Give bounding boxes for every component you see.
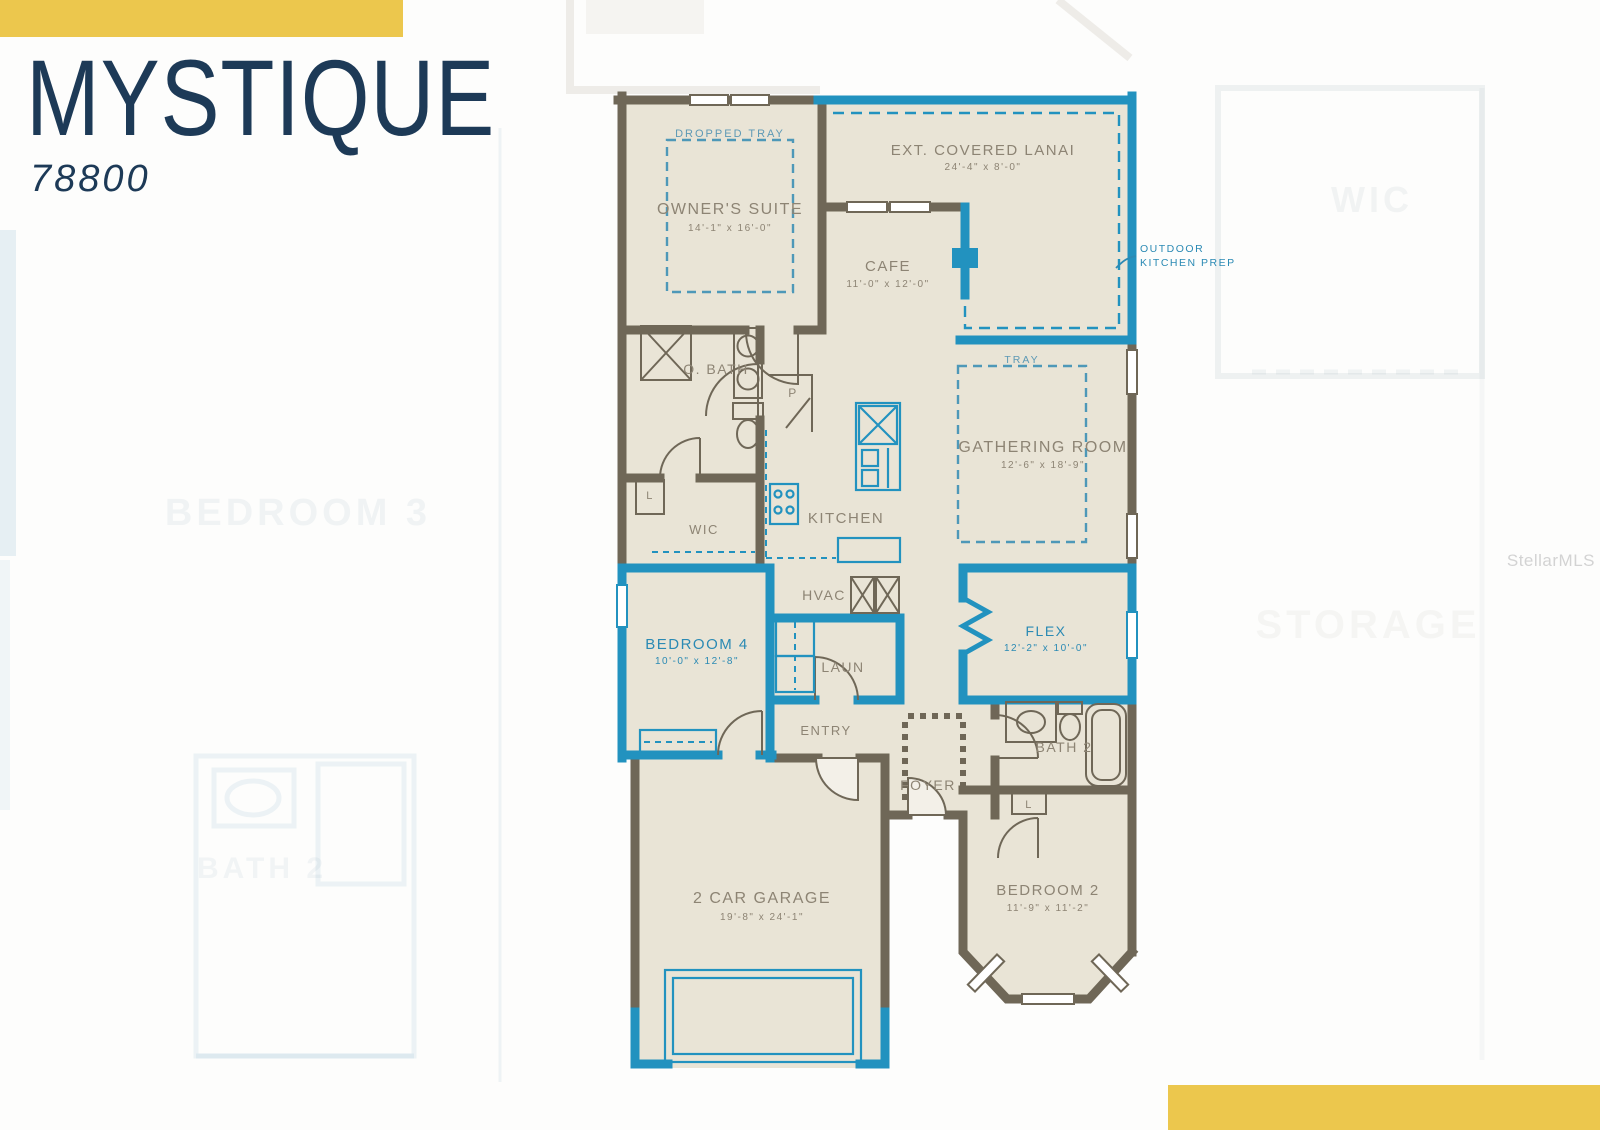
window — [890, 202, 930, 212]
floor-plan-drawing: BEDROOM 3 BATH 2 STORAGE WIC — [0, 0, 1600, 1130]
gathering-label: GATHERING ROOM — [958, 439, 1127, 456]
owners-suite-label: OWNER'S SUITE — [657, 201, 803, 218]
bg-label-storage: STORAGE — [1255, 603, 1480, 647]
pantry-label: P — [788, 386, 798, 400]
bay-window — [1022, 994, 1074, 1004]
bottom-accent-bar — [1168, 1085, 1600, 1130]
obath-label: O. BATH — [683, 361, 748, 377]
hvac-label: HVAC — [802, 587, 846, 603]
dropped-tray-label: DROPPED TRAY — [675, 128, 785, 140]
laundry-label: LAUN — [821, 659, 864, 675]
bg-bath-fixtures — [196, 756, 414, 1056]
window — [731, 95, 769, 105]
entry-label: ENTRY — [800, 723, 851, 738]
cafe-dims: 11'-0" x 12'-0" — [846, 279, 929, 290]
bedroom2-label: BEDROOM 2 — [996, 882, 1100, 899]
window — [847, 202, 887, 212]
window — [1127, 514, 1137, 558]
wic-label: WIC — [689, 522, 719, 537]
kitchen-label: KITCHEN — [808, 510, 884, 527]
cafe-label: CAFE — [865, 258, 911, 275]
window — [690, 95, 728, 105]
bg-label-bedroom3: BEDROOM 3 — [165, 492, 431, 534]
gathering-dims: 12'-6" x 18'-9" — [1001, 460, 1085, 471]
lanai-dims: 24'-4" x 8'-0" — [945, 162, 1022, 173]
owner-linen-label: L — [646, 490, 654, 502]
garage-label: 2 CAR GARAGE — [693, 890, 831, 907]
window — [1127, 612, 1137, 658]
stellar-mls-watermark: StellarMLS — [1507, 551, 1595, 571]
bath2-label: BATH 2 — [1036, 739, 1093, 755]
bg-label-bath2: BATH 2 — [197, 852, 327, 885]
foyer-label: FOYER — [900, 777, 956, 793]
window — [1127, 350, 1137, 394]
lanai-label: EXT. COVERED LANAI — [891, 142, 1076, 159]
outdoor-prep-label-2: KITCHEN PREP — [1140, 257, 1236, 269]
floorplan-page: { "header": { "title": "MYSTIQUE", "mode… — [0, 0, 1600, 1130]
outdoor-prep-label-1: OUTDOOR — [1140, 243, 1204, 255]
garage-dims: 19'-8" x 24'-1" — [720, 912, 804, 923]
bedroom4-label: BEDROOM 4 — [645, 636, 749, 653]
window — [617, 585, 627, 627]
flex-dims: 12'-2" x 10'-0" — [1004, 643, 1088, 654]
owners-suite-dims: 14'-1" x 16'-0" — [688, 223, 772, 234]
tray-label: TRAY — [1004, 354, 1039, 366]
bg-label-wic: WIC — [1331, 179, 1413, 220]
flex-label: FLEX — [1025, 623, 1066, 639]
bath2-linen-label: L — [1025, 799, 1033, 811]
bedroom4-dims: 10'-0" x 12'-8" — [655, 656, 739, 667]
bedroom2-dims: 11'-9" x 11'-2" — [1007, 903, 1090, 914]
